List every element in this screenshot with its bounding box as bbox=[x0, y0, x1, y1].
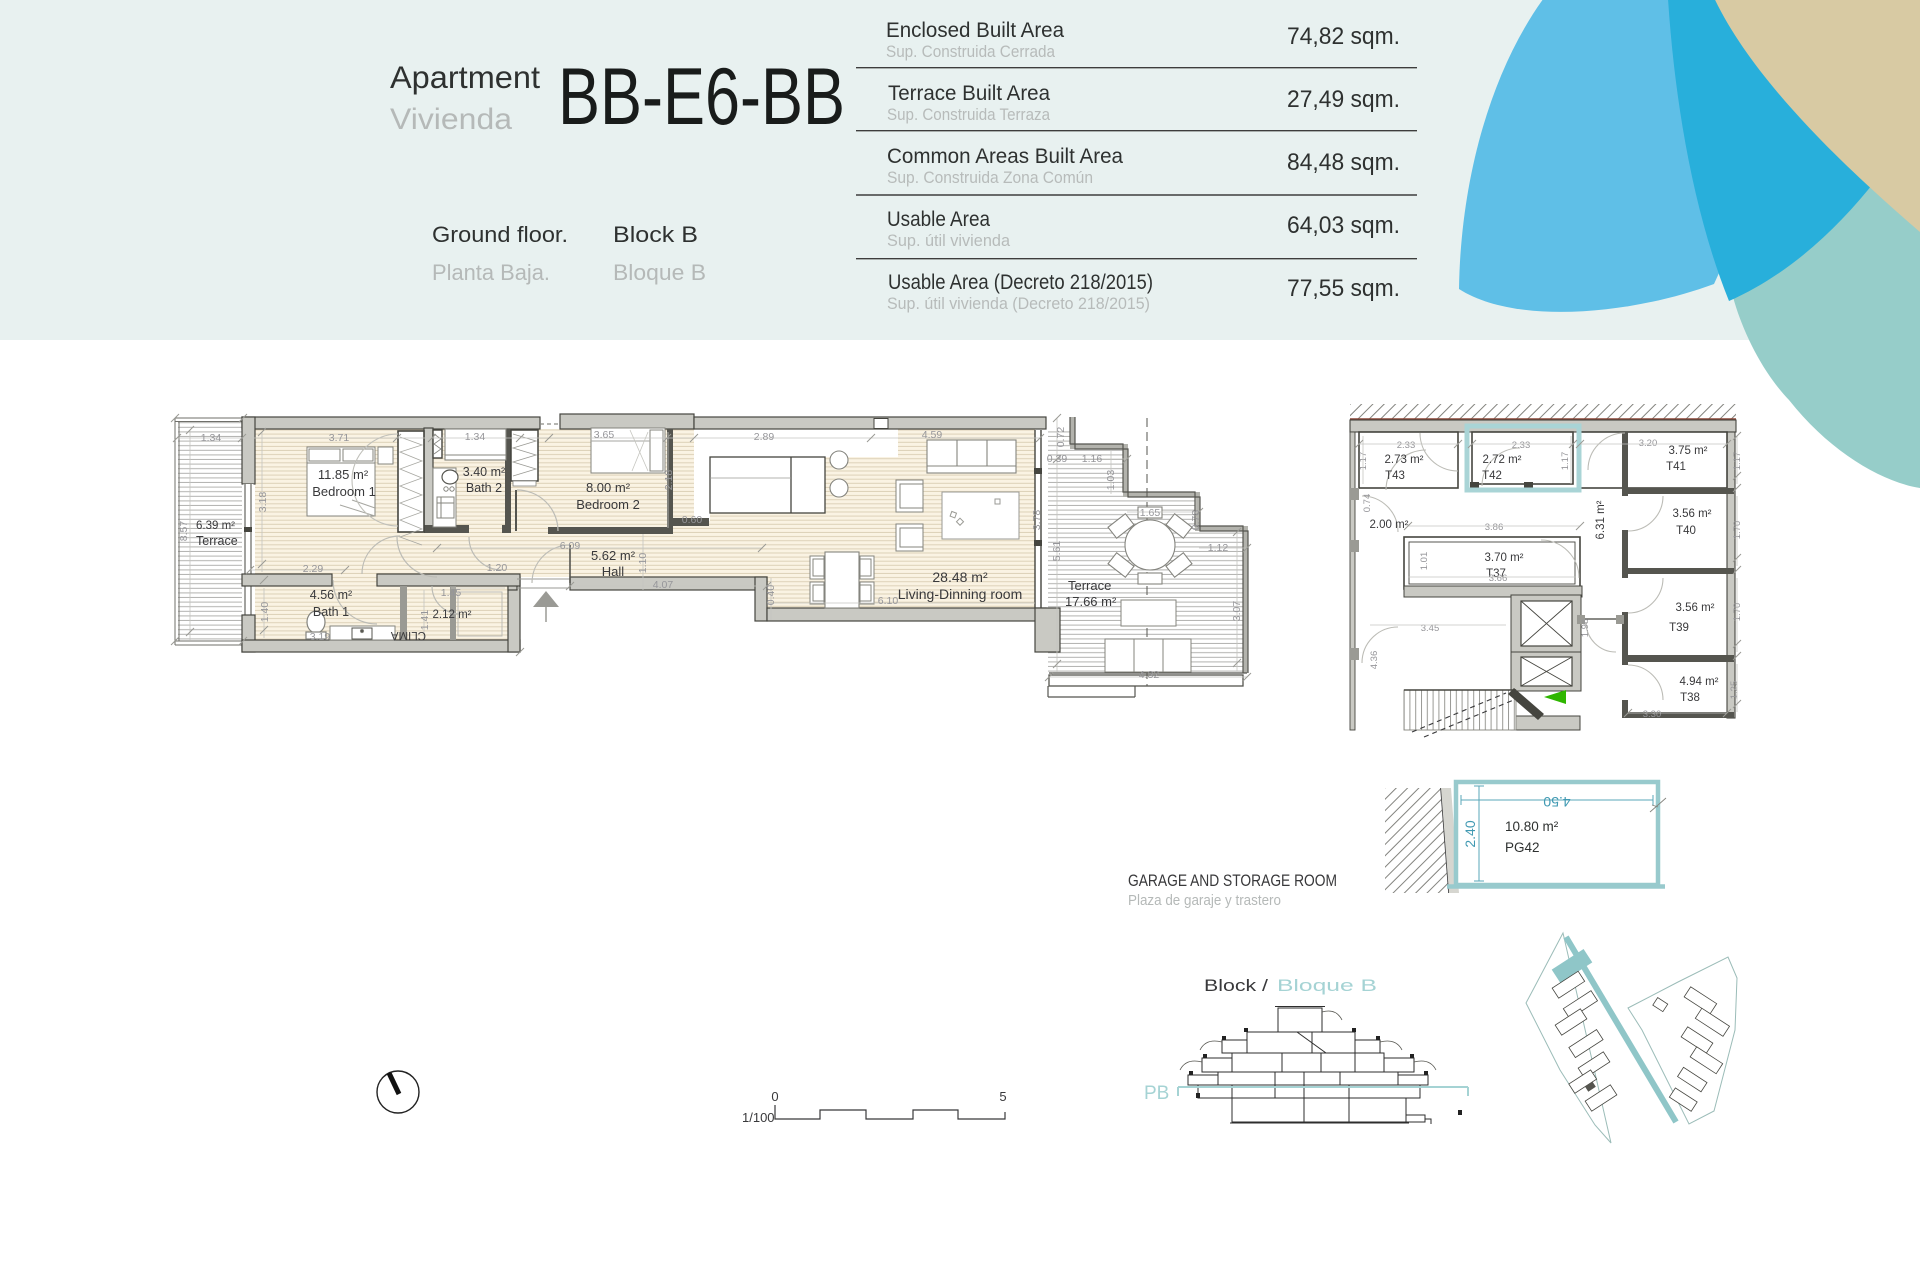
svg-text:1.41: 1.41 bbox=[419, 610, 431, 631]
svg-text:Terrace: Terrace bbox=[1068, 578, 1111, 593]
svg-text:3.56 m²: 3.56 m² bbox=[1673, 508, 1712, 520]
svg-text:1.70: 1.70 bbox=[1732, 603, 1743, 622]
svg-text:8.57: 8.57 bbox=[178, 521, 190, 542]
svg-text:1.01: 1.01 bbox=[1419, 552, 1430, 571]
svg-text:3.20: 3.20 bbox=[1639, 438, 1658, 449]
svg-text:Usable Area (Decreto 218/2015): Usable Area (Decreto 218/2015) bbox=[888, 271, 1153, 294]
svg-text:4.59: 4.59 bbox=[922, 429, 943, 441]
svg-text:T42: T42 bbox=[1482, 470, 1502, 482]
svg-text:2.33: 2.33 bbox=[1397, 440, 1416, 451]
svg-text:2.18: 2.18 bbox=[663, 470, 675, 491]
svg-text:10.80 m²: 10.80 m² bbox=[1505, 819, 1559, 834]
svg-text:28.48 m²: 28.48 m² bbox=[932, 569, 988, 585]
svg-text:6.31 m²: 6.31 m² bbox=[1595, 500, 1607, 539]
svg-text:64,03 sqm.: 64,03 sqm. bbox=[1287, 212, 1400, 239]
svg-text:6.09: 6.09 bbox=[560, 540, 581, 552]
svg-text:3.86: 3.86 bbox=[1485, 522, 1504, 533]
svg-text:1.17: 1.17 bbox=[1358, 452, 1369, 471]
svg-text:Enclosed Built Area: Enclosed Built Area bbox=[886, 19, 1064, 42]
svg-text:6.39 m²: 6.39 m² bbox=[196, 520, 235, 532]
svg-text:Sup. Construida Cerrada: Sup. Construida Cerrada bbox=[886, 42, 1055, 61]
svg-text:Ground floor.: Ground floor. bbox=[432, 222, 568, 247]
svg-text:Common Areas Built Area: Common Areas Built Area bbox=[887, 145, 1123, 168]
svg-text:1.70: 1.70 bbox=[1732, 521, 1743, 540]
svg-text:4.56 m²: 4.56 m² bbox=[310, 588, 352, 602]
svg-text:Planta Baja.: Planta Baja. bbox=[432, 260, 550, 285]
svg-text:2.72 m²: 2.72 m² bbox=[1483, 454, 1522, 466]
svg-text:0: 0 bbox=[771, 1089, 778, 1104]
svg-text:2.12 m²: 2.12 m² bbox=[433, 609, 472, 621]
svg-text:T38: T38 bbox=[1680, 692, 1700, 704]
svg-text:BB-E6-BB: BB-E6-BB bbox=[558, 52, 845, 142]
svg-text:11.85 m²: 11.85 m² bbox=[318, 467, 369, 482]
svg-text:8.00 m²: 8.00 m² bbox=[586, 480, 631, 495]
svg-text:3.70 m²: 3.70 m² bbox=[1485, 552, 1524, 564]
svg-text:Plaza de garaje y trastero: Plaza de garaje y trastero bbox=[1128, 892, 1281, 909]
svg-text:17.66 m²: 17.66 m² bbox=[1065, 594, 1117, 609]
svg-text:3.30: 3.30 bbox=[1643, 709, 1662, 720]
svg-text:3.56 m²: 3.56 m² bbox=[1676, 602, 1715, 614]
svg-text:2.89: 2.89 bbox=[754, 431, 775, 443]
svg-text:Sup. útil vivienda (Decreto 21: Sup. útil vivienda (Decreto 218/2015) bbox=[887, 294, 1150, 313]
svg-text:4.36: 4.36 bbox=[1369, 651, 1380, 670]
svg-text:2.73 m²: 2.73 m² bbox=[1385, 454, 1424, 466]
svg-text:1.45: 1.45 bbox=[441, 587, 462, 599]
svg-text:0.40: 0.40 bbox=[765, 585, 777, 606]
svg-text:3.65: 3.65 bbox=[594, 429, 615, 441]
svg-text:3.75 m²: 3.75 m² bbox=[1669, 445, 1708, 457]
svg-text:1.25: 1.25 bbox=[1729, 681, 1740, 700]
svg-text:PB: PB bbox=[1144, 1083, 1169, 1104]
svg-text:3.18: 3.18 bbox=[257, 492, 269, 513]
svg-text:1.20: 1.20 bbox=[487, 562, 508, 574]
svg-text:Hall: Hall bbox=[602, 564, 625, 579]
svg-text:1.17: 1.17 bbox=[1732, 452, 1743, 471]
svg-text:3.07: 3.07 bbox=[1231, 601, 1243, 622]
svg-text:Block B: Block B bbox=[613, 222, 698, 247]
svg-text:2.29: 2.29 bbox=[303, 563, 324, 575]
svg-text:Sup. útil vivienda: Sup. útil vivienda bbox=[887, 231, 1011, 250]
svg-text:Bedroom 1: Bedroom 1 bbox=[312, 484, 376, 499]
svg-text:2.40: 2.40 bbox=[1462, 820, 1478, 847]
svg-text:1.10: 1.10 bbox=[637, 553, 649, 574]
svg-text:4.50: 4.50 bbox=[1543, 794, 1570, 810]
svg-text:Apartment: Apartment bbox=[390, 59, 540, 95]
svg-text:1.34: 1.34 bbox=[201, 432, 222, 444]
svg-text:Sup. Construida Terraza: Sup. Construida Terraza bbox=[887, 105, 1050, 124]
svg-text:1.03: 1.03 bbox=[1105, 470, 1117, 491]
svg-text:GARAGE AND STORAGE ROOM: GARAGE AND STORAGE ROOM bbox=[1128, 872, 1337, 890]
svg-text:Vivienda: Vivienda bbox=[390, 103, 512, 136]
svg-text:T41: T41 bbox=[1666, 461, 1686, 473]
svg-text:3.66: 3.66 bbox=[1489, 573, 1508, 584]
svg-text:Bath 2: Bath 2 bbox=[466, 481, 502, 495]
svg-text:4.32: 4.32 bbox=[1139, 669, 1160, 681]
svg-text:Bedroom 2: Bedroom 2 bbox=[576, 497, 640, 512]
svg-text:3.19: 3.19 bbox=[310, 631, 331, 643]
svg-text:1.40: 1.40 bbox=[259, 602, 271, 623]
svg-text:5.62 m²: 5.62 m² bbox=[591, 548, 636, 563]
svg-text:0.39: 0.39 bbox=[1047, 453, 1068, 465]
svg-text:1/100: 1/100 bbox=[742, 1110, 775, 1125]
svg-text:6.10: 6.10 bbox=[878, 595, 899, 607]
svg-text:PG42: PG42 bbox=[1505, 840, 1540, 855]
svg-text:2.00 m²: 2.00 m² bbox=[1370, 519, 1409, 531]
svg-text:T39: T39 bbox=[1669, 622, 1689, 634]
svg-text:3.71: 3.71 bbox=[329, 432, 350, 444]
svg-text:1.17: 1.17 bbox=[1560, 452, 1571, 471]
svg-text:Bloque B: Bloque B bbox=[613, 260, 706, 285]
svg-text:77,55 sqm.: 77,55 sqm. bbox=[1287, 275, 1400, 302]
svg-text:Block /: Block / bbox=[1204, 976, 1268, 995]
svg-text:T43: T43 bbox=[1385, 470, 1405, 482]
svg-text:3.78: 3.78 bbox=[1031, 510, 1043, 531]
svg-text:0.60: 0.60 bbox=[682, 514, 703, 526]
svg-text:Terrace: Terrace bbox=[196, 534, 238, 548]
svg-text:Sup. Construida Zona Común: Sup. Construida Zona Común bbox=[887, 168, 1093, 187]
svg-text:Terrace Built Area: Terrace Built Area bbox=[888, 82, 1050, 105]
svg-text:1.65: 1.65 bbox=[1140, 507, 1161, 519]
svg-text:1.34: 1.34 bbox=[465, 431, 486, 443]
svg-text:0.78: 0.78 bbox=[1190, 510, 1202, 531]
svg-text:5: 5 bbox=[999, 1089, 1006, 1104]
svg-text:Bath 1: Bath 1 bbox=[313, 605, 349, 619]
svg-text:0.74: 0.74 bbox=[1362, 494, 1373, 513]
svg-text:5.61: 5.61 bbox=[1051, 541, 1063, 562]
svg-text:Usable Area: Usable Area bbox=[887, 208, 990, 231]
svg-text:2.33: 2.33 bbox=[1512, 440, 1531, 451]
svg-text:T40: T40 bbox=[1676, 525, 1696, 537]
svg-text:1.16: 1.16 bbox=[1082, 453, 1103, 465]
svg-text:0.72: 0.72 bbox=[1055, 427, 1067, 448]
svg-text:4.07: 4.07 bbox=[653, 579, 674, 591]
svg-text:1.98: 1.98 bbox=[1580, 619, 1591, 638]
svg-text:27,49 sqm.: 27,49 sqm. bbox=[1287, 86, 1400, 113]
svg-text:3.40 m²: 3.40 m² bbox=[463, 465, 505, 479]
svg-text:1.12: 1.12 bbox=[1208, 542, 1229, 554]
svg-text:74,82 sqm.: 74,82 sqm. bbox=[1287, 23, 1400, 50]
svg-text:Bloque B: Bloque B bbox=[1277, 976, 1377, 995]
svg-text:Living-Dinning room: Living-Dinning room bbox=[898, 586, 1023, 602]
svg-text:84,48 sqm.: 84,48 sqm. bbox=[1287, 149, 1400, 176]
svg-text:4.94 m²: 4.94 m² bbox=[1680, 676, 1719, 688]
